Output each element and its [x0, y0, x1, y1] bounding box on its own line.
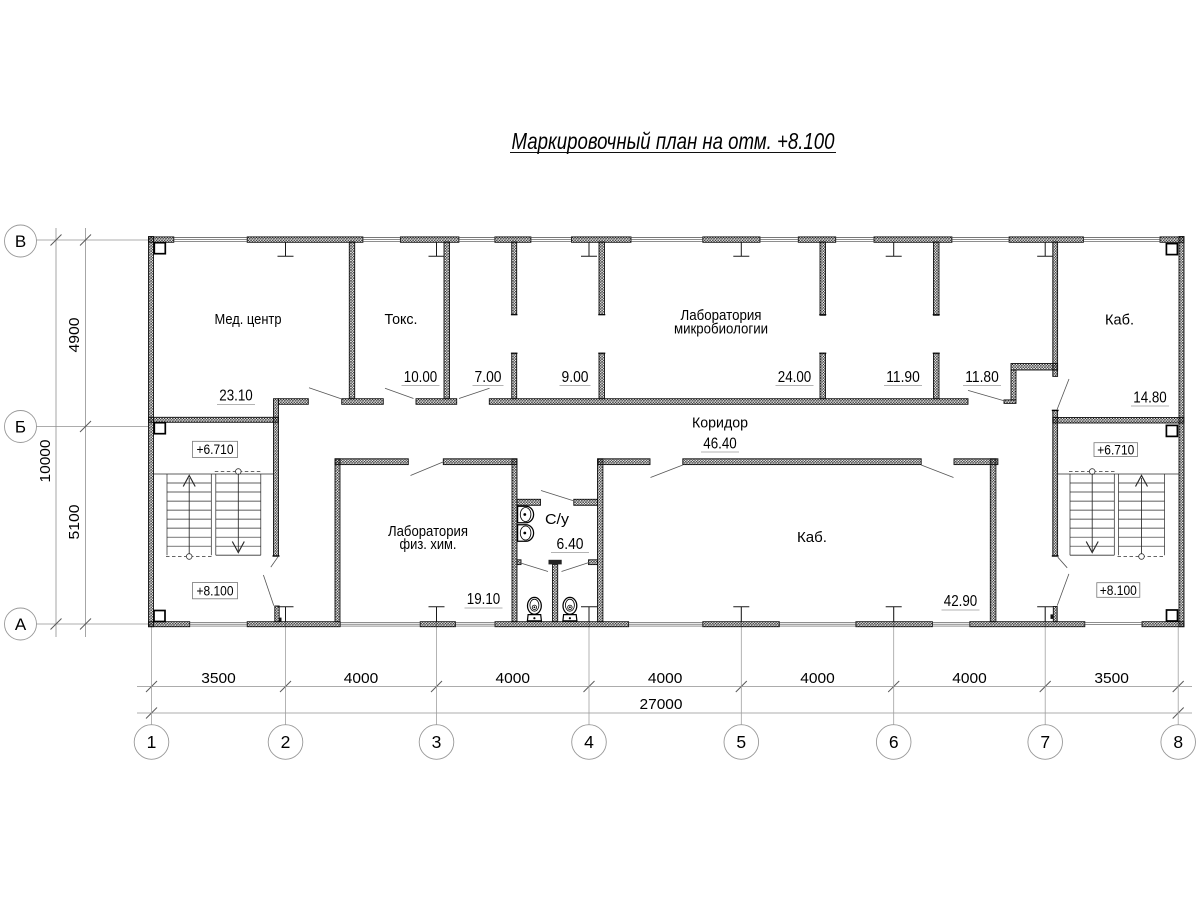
svg-text:3: 3	[432, 732, 442, 752]
svg-text:+6.710: +6.710	[197, 442, 234, 457]
svg-text:24.00: 24.00	[778, 369, 812, 386]
svg-text:4000: 4000	[952, 670, 987, 687]
svg-text:42.90: 42.90	[944, 593, 978, 610]
svg-text:Каб.: Каб.	[1105, 312, 1134, 329]
svg-text:6: 6	[889, 732, 899, 752]
svg-text:4000: 4000	[344, 670, 379, 687]
svg-text:3500: 3500	[201, 670, 236, 687]
svg-text:Коридор: Коридор	[692, 415, 748, 432]
svg-text:Маркировочный план на отм. +8.: Маркировочный план на отм. +8.100	[512, 128, 835, 154]
svg-text:физ. хим.: физ. хим.	[400, 536, 457, 553]
svg-text:Каб.: Каб.	[797, 529, 827, 546]
svg-text:5100: 5100	[67, 505, 83, 540]
svg-text:10.00: 10.00	[404, 369, 438, 386]
svg-text:4900: 4900	[67, 318, 83, 353]
svg-text:14.80: 14.80	[1133, 390, 1167, 407]
svg-text:С/у: С/у	[545, 511, 570, 528]
svg-text:9.00: 9.00	[562, 369, 589, 386]
svg-text:3500: 3500	[1094, 670, 1129, 687]
svg-text:Б: Б	[15, 418, 26, 437]
svg-text:5: 5	[736, 732, 746, 752]
svg-text:6.40: 6.40	[557, 536, 584, 553]
svg-text:Токс.: Токс.	[385, 311, 418, 328]
svg-text:+8.100: +8.100	[197, 583, 234, 598]
svg-text:+6.710: +6.710	[1097, 442, 1134, 457]
svg-text:11.80: 11.80	[965, 369, 999, 386]
svg-text:4: 4	[584, 732, 594, 752]
svg-text:10000: 10000	[38, 440, 54, 483]
svg-text:1: 1	[147, 732, 157, 752]
svg-text:2: 2	[281, 732, 291, 752]
svg-text:Мед. центр: Мед. центр	[215, 311, 282, 328]
svg-text:4000: 4000	[496, 670, 531, 687]
svg-text:+8.100: +8.100	[1100, 583, 1137, 598]
svg-text:7: 7	[1040, 732, 1050, 752]
svg-text:8: 8	[1173, 732, 1183, 752]
svg-text:23.10: 23.10	[219, 388, 253, 405]
svg-text:19.10: 19.10	[467, 591, 501, 608]
svg-text:В: В	[15, 232, 26, 251]
svg-text:микробиологии: микробиологии	[674, 321, 768, 338]
svg-text:11.90: 11.90	[886, 369, 920, 386]
svg-text:46.40: 46.40	[703, 436, 737, 453]
svg-text:4000: 4000	[648, 670, 683, 687]
svg-text:А: А	[15, 615, 27, 634]
svg-text:4000: 4000	[800, 670, 835, 687]
svg-text:27000: 27000	[640, 696, 683, 713]
svg-text:7.00: 7.00	[475, 369, 502, 386]
